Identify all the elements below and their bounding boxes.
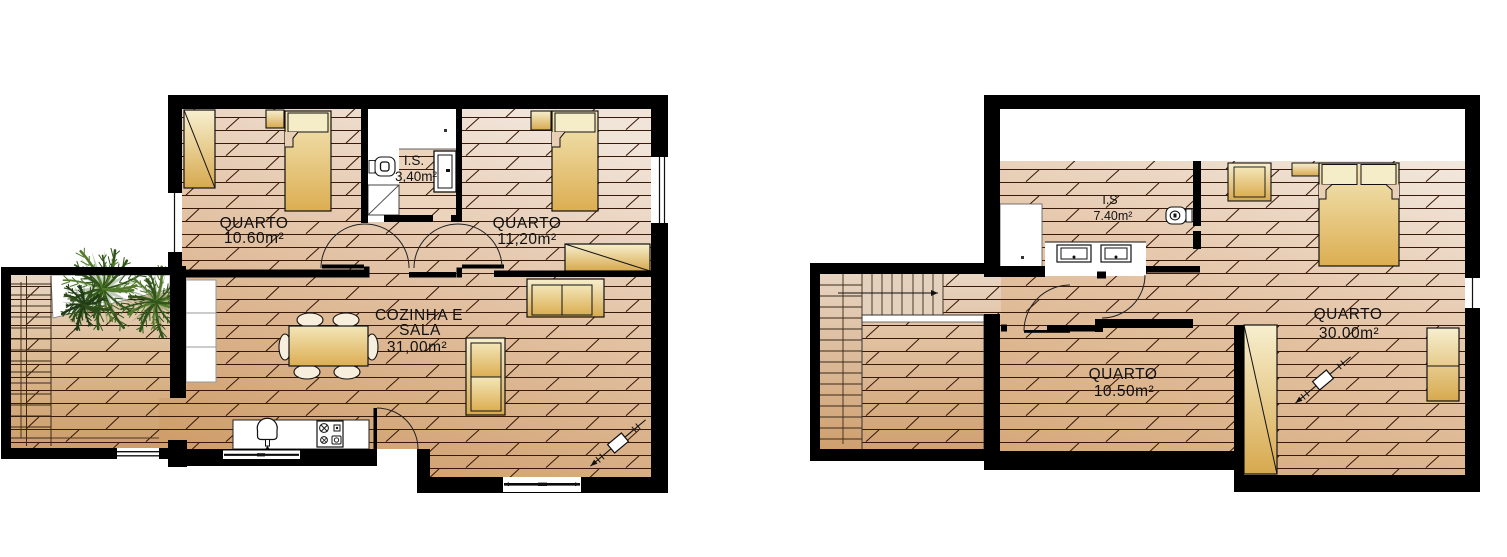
svg-text:I.S: I.S <box>1102 193 1117 207</box>
svg-text:30.00m²: 30.00m² <box>1319 325 1379 342</box>
svg-text:SALA: SALA <box>399 322 441 339</box>
svg-text:7.40m²: 7.40m² <box>1094 209 1133 223</box>
svg-text:QUARTO: QUARTO <box>1089 366 1158 383</box>
svg-text:31,00m²: 31,00m² <box>387 339 447 356</box>
svg-text:QUARTO: QUARTO <box>493 215 562 232</box>
svg-text:3,40m²: 3,40m² <box>395 169 438 184</box>
svg-text:I.S.: I.S. <box>404 153 424 168</box>
svg-text:10.50m²: 10.50m² <box>1094 383 1154 400</box>
svg-text:QUARTO: QUARTO <box>1314 306 1383 323</box>
svg-text:11,20m²: 11,20m² <box>497 231 556 248</box>
svg-text:10.60m²: 10.60m² <box>224 230 284 247</box>
